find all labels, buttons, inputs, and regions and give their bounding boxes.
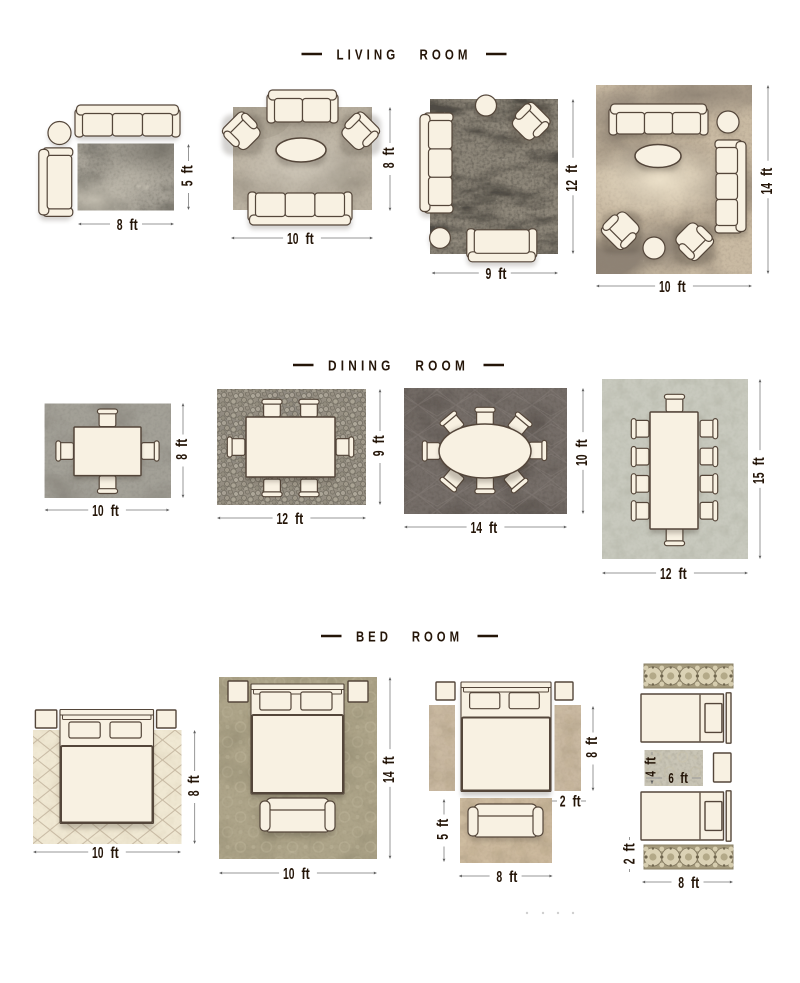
svg-text:ft: ft <box>643 757 660 765</box>
svg-text:6: 6 <box>668 770 673 787</box>
svg-text:10: 10 <box>283 866 295 883</box>
svg-text:ft: ft <box>498 266 507 283</box>
svg-text:5: 5 <box>435 834 452 840</box>
svg-text:ft: ft <box>435 818 452 827</box>
svg-text:9: 9 <box>486 266 492 283</box>
svg-text:ft: ft <box>302 866 311 883</box>
svg-text:2: 2 <box>622 858 639 864</box>
svg-text:ft: ft <box>759 167 776 176</box>
svg-text:ft: ft <box>381 147 398 156</box>
svg-text:DINING ROOM: DINING ROOM <box>328 358 469 375</box>
svg-text:10: 10 <box>574 454 591 466</box>
svg-text:12: 12 <box>277 511 289 528</box>
svg-text:8: 8 <box>496 869 502 886</box>
svg-text:10: 10 <box>659 279 671 296</box>
svg-text:5: 5 <box>180 180 197 186</box>
svg-text:ft: ft <box>679 566 688 583</box>
svg-text:8: 8 <box>584 752 601 758</box>
svg-text:ft: ft <box>622 843 639 852</box>
svg-text:ft: ft <box>306 231 315 248</box>
svg-text:ft: ft <box>295 511 304 528</box>
svg-text:14: 14 <box>381 771 398 783</box>
svg-text:8: 8 <box>117 217 123 234</box>
svg-text:8: 8 <box>186 790 203 796</box>
svg-text:12: 12 <box>564 180 581 192</box>
svg-text:8: 8 <box>381 162 398 168</box>
svg-text:ft: ft <box>584 736 601 745</box>
svg-text:4: 4 <box>643 771 660 777</box>
svg-text:8: 8 <box>174 454 191 460</box>
svg-text:ft: ft <box>180 165 197 174</box>
svg-text:ft: ft <box>678 279 687 296</box>
svg-text:ft: ft <box>381 756 398 765</box>
svg-text:9: 9 <box>371 450 388 456</box>
svg-text:ft: ft <box>751 457 768 466</box>
svg-text:10: 10 <box>92 845 104 862</box>
svg-text:10: 10 <box>92 503 104 520</box>
svg-text:LIVING ROOM: LIVING ROOM <box>337 47 472 64</box>
svg-text:12: 12 <box>660 566 672 583</box>
svg-text:8: 8 <box>678 875 684 892</box>
svg-text:14: 14 <box>759 183 776 195</box>
svg-text:ft: ft <box>186 775 203 784</box>
svg-text:ft: ft <box>574 439 591 448</box>
svg-text:ft: ft <box>489 520 498 537</box>
svg-text:ft: ft <box>564 164 581 173</box>
svg-text:ft: ft <box>371 435 388 444</box>
svg-text:10: 10 <box>287 231 299 248</box>
svg-text:ft: ft <box>691 875 700 892</box>
svg-text:2: 2 <box>560 794 566 811</box>
svg-text:ft: ft <box>111 503 120 520</box>
svg-text:ft: ft <box>174 438 191 447</box>
svg-text:ft: ft <box>509 869 518 886</box>
svg-text:ft: ft <box>130 217 139 234</box>
svg-text:14: 14 <box>471 520 483 537</box>
svg-text:BED ROOM: BED ROOM <box>356 629 463 646</box>
svg-text:ft: ft <box>111 845 120 862</box>
svg-text:15: 15 <box>751 472 768 484</box>
svg-text:ft: ft <box>573 794 582 811</box>
svg-text:ft: ft <box>680 770 688 787</box>
